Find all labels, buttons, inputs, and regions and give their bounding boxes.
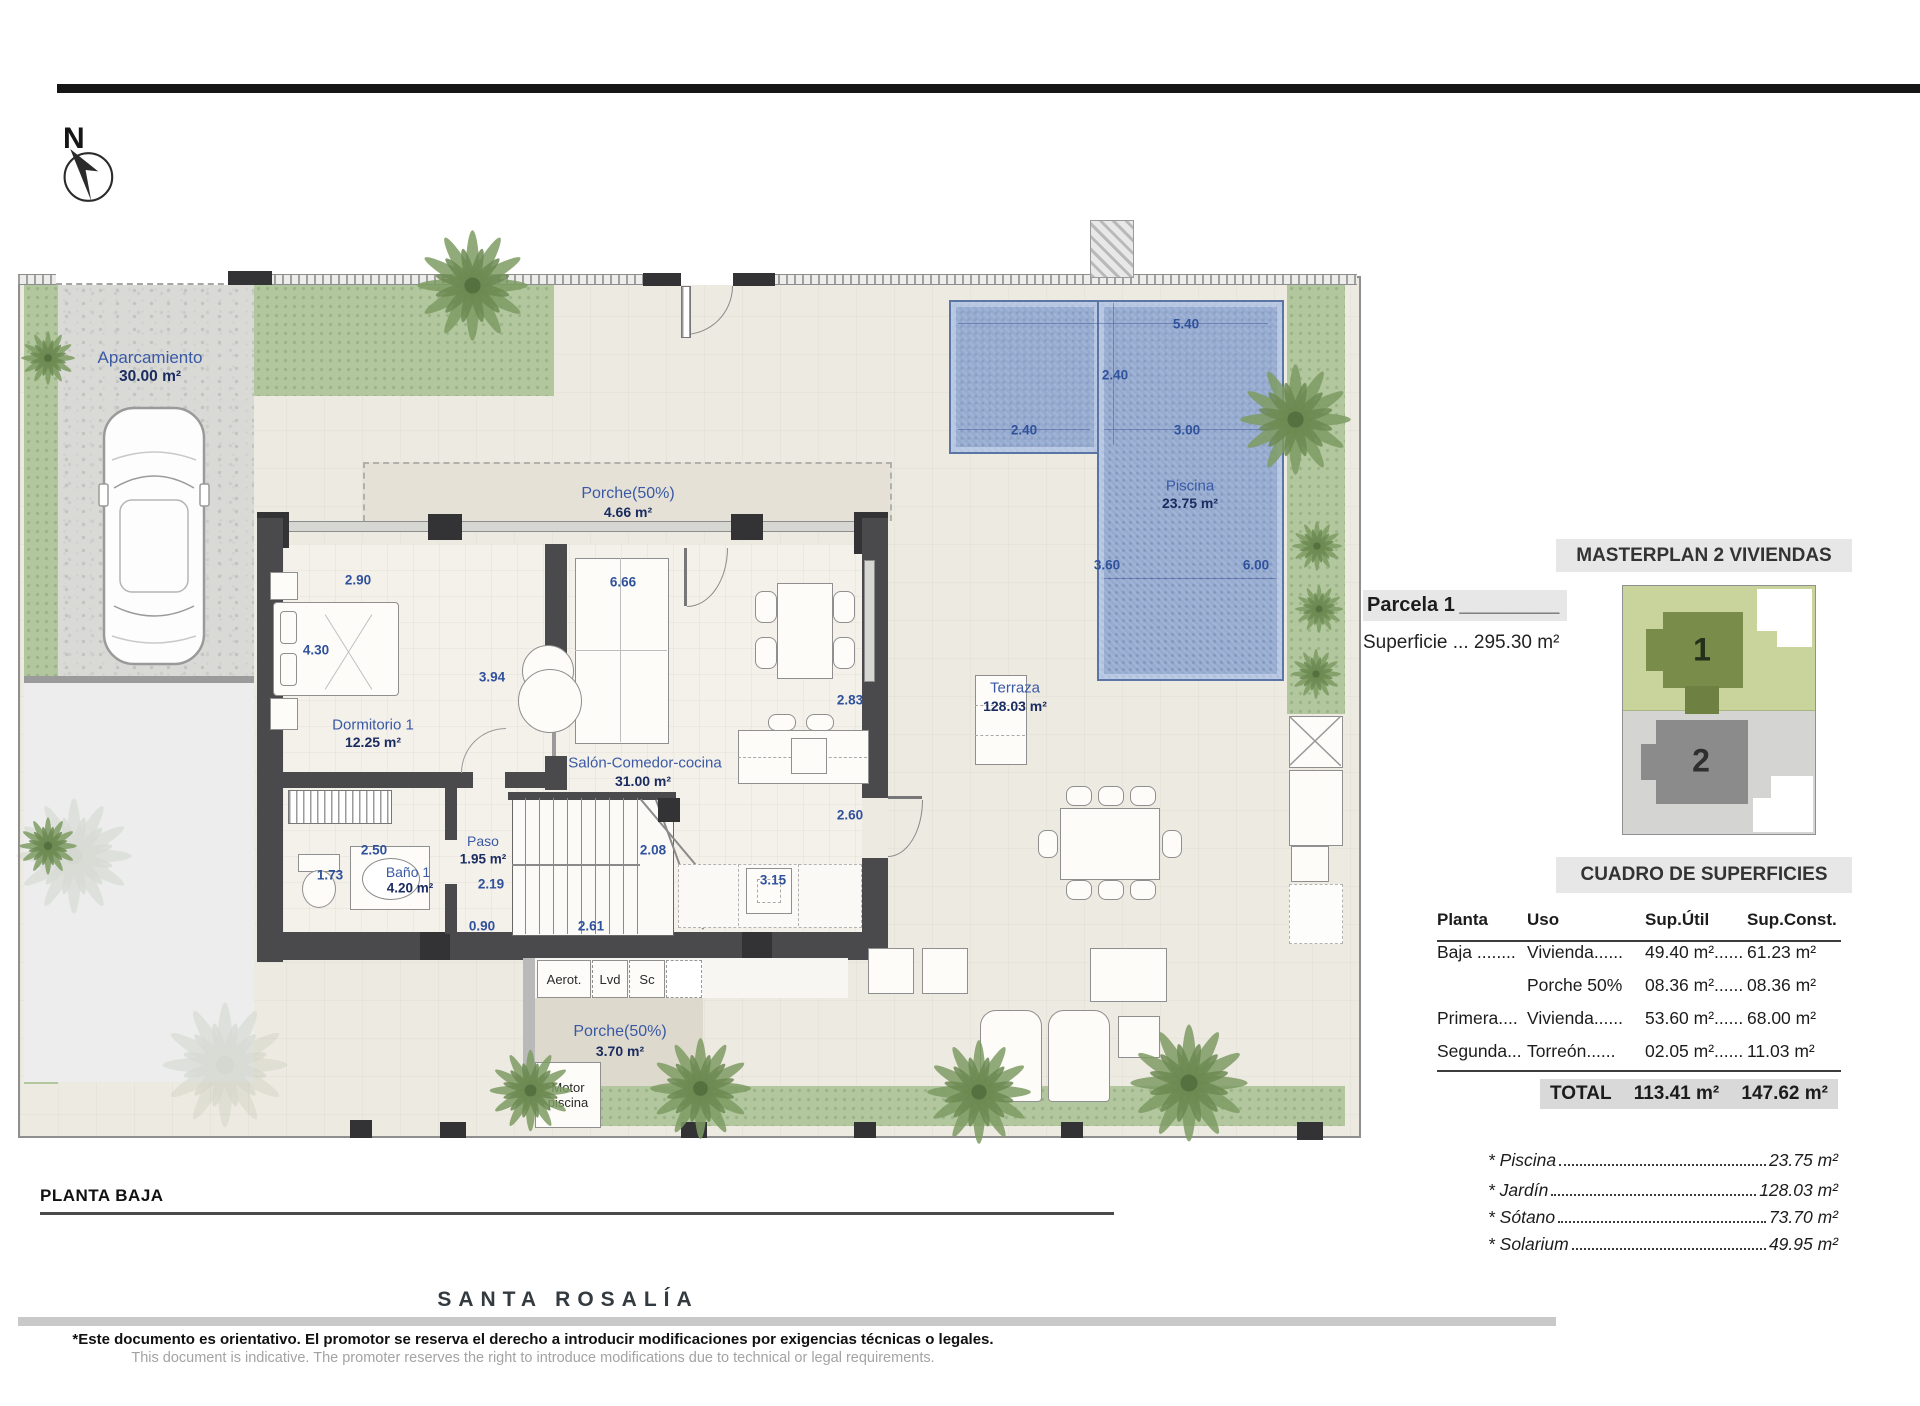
nightstand <box>270 572 298 600</box>
extra-value: 23.75 m² <box>1769 1150 1838 1171</box>
chair <box>755 637 777 669</box>
palm-tree-icon <box>160 1000 290 1130</box>
footer-rule <box>18 1317 1556 1326</box>
stair-rail <box>512 864 640 866</box>
fence-post <box>854 1122 876 1138</box>
dim-label: 2.90 <box>345 573 371 588</box>
room-label-aparcamiento: Aparcamiento <box>98 348 203 368</box>
extra-value: 128.03 m² <box>1759 1180 1838 1201</box>
house-1-shape <box>1685 686 1719 714</box>
coffee-table <box>518 669 582 733</box>
outdoor-chair <box>1038 830 1058 858</box>
neighbor-entry-steps <box>1090 220 1134 278</box>
aerotermia-box: Aerot. <box>537 960 591 998</box>
parcela-label: Parcela 1 <box>1367 594 1455 616</box>
cell-uso: Vivienda...... <box>1527 942 1645 963</box>
masterplan-title: MASTERPLAN 2 VIVIENDAS <box>1576 545 1831 566</box>
stool <box>768 714 796 731</box>
outdoor-chair <box>1162 830 1182 858</box>
entry-door-leaf <box>684 548 687 606</box>
parcela-bar: Parcela 1 _________ <box>1363 590 1567 621</box>
total-label: TOTAL <box>1550 1083 1612 1105</box>
nightstand <box>270 698 298 730</box>
stair-treads <box>512 798 640 934</box>
cuadro-title: CUADRO DE SUPERFICIES <box>1580 864 1827 885</box>
fence-post <box>1061 1122 1083 1138</box>
counter-line <box>975 735 1025 736</box>
dim-label: 2.40 <box>1102 368 1128 383</box>
disclaimer-en: This document is indicative. The promote… <box>18 1350 1048 1366</box>
facade-pillar <box>731 514 763 540</box>
cooktop <box>791 738 827 774</box>
extra-value: 73.70 m² <box>1769 1207 1838 1228</box>
utility-dashed-box <box>1289 884 1343 944</box>
partition-dorm-bath <box>505 772 545 788</box>
disclaimer-block: *Este documento es orientativo. El promo… <box>18 1331 1048 1366</box>
room-area-porche-bottom: 3.70 m² <box>596 1043 644 1059</box>
room-area-aparcamiento: 30.00 m² <box>119 368 181 386</box>
dim-label: 1.73 <box>317 868 343 883</box>
dim-label: 2.60 <box>837 808 863 823</box>
outdoor-chair <box>1130 880 1156 900</box>
partition-bath-paso <box>445 788 457 840</box>
dim-label: 2.83 <box>837 693 863 708</box>
palm-tree-icon <box>925 1038 1033 1146</box>
stool <box>806 714 834 731</box>
extra-label: * Solarium <box>1488 1234 1569 1255</box>
fence-post <box>733 273 775 286</box>
cabinet-divider <box>738 864 739 926</box>
partition-dorm-bath <box>283 772 473 788</box>
extra-label: * Piscina <box>1488 1150 1556 1171</box>
plan-title: PLANTA BAJA <box>40 1186 164 1206</box>
extra-row-solarium: * Solarium49.95 m² <box>1488 1234 1838 1255</box>
dim-label: 6.66 <box>610 575 636 590</box>
house-1-shape <box>1646 629 1666 671</box>
dotted-leader <box>1559 1164 1766 1166</box>
utility-meter <box>1291 846 1329 882</box>
room-label-salon: Salón-Comedor-cocina <box>568 755 721 772</box>
stair-pillar <box>658 798 680 822</box>
total-bar: TOTAL 113.41 m² 147.62 m² <box>1540 1079 1838 1109</box>
dim-label: 3.60 <box>1094 558 1120 573</box>
dim-label: 2.40 <box>1011 423 1037 438</box>
pillow <box>280 653 297 686</box>
ac-unit-x <box>1289 716 1341 766</box>
masterplan-title-bar: MASTERPLAN 2 VIVIENDAS <box>1556 539 1852 572</box>
floor-plan-page: N <box>0 0 1920 1406</box>
cell-util: 49.40 m²...... <box>1645 942 1747 963</box>
col-header-planta: Planta <box>1437 910 1527 930</box>
map-notch <box>1777 631 1812 647</box>
col-header-uso: Uso <box>1527 910 1645 930</box>
lavadora-label: Lvd <box>600 972 621 987</box>
room-area-dormitorio1: 12.25 m² <box>345 734 401 750</box>
bush-icon <box>20 330 76 386</box>
table-rule <box>1437 1070 1841 1072</box>
bush-icon <box>1294 584 1344 634</box>
dim-label: 5.40 <box>1173 317 1199 332</box>
parcela-line: _________ <box>1459 594 1559 616</box>
extra-row-piscina: * Piscina23.75 m² <box>1488 1150 1838 1171</box>
dotted-leader <box>1558 1221 1766 1223</box>
wall-bottom <box>257 932 888 960</box>
total-const: 147.62 m² <box>1741 1083 1828 1105</box>
cuadro-title-bar: CUADRO DE SUPERFICIES <box>1556 857 1852 893</box>
garden-wall <box>24 676 254 683</box>
map-notch <box>1753 798 1773 832</box>
room-area-paso: 1.95 m² <box>460 852 507 867</box>
sun-lounger <box>1048 1010 1110 1102</box>
dim-label: 3.15 <box>760 873 786 888</box>
cell-uso: Vivienda...... <box>1527 1008 1645 1029</box>
map-notch <box>1771 776 1813 832</box>
dim-label: 2.50 <box>361 843 387 858</box>
fence-post <box>350 1120 372 1138</box>
pillow <box>280 611 297 644</box>
terrace-door-gap <box>862 798 888 858</box>
chair <box>755 591 777 623</box>
gate-leaf <box>681 286 691 338</box>
room-area-salon: 31.00 m² <box>615 773 671 789</box>
window-right <box>864 560 875 682</box>
bush-icon <box>1290 648 1342 700</box>
fence-post <box>643 273 681 286</box>
cabinet-divider <box>798 864 799 926</box>
room-area-piscina: 23.75 m² <box>1162 495 1218 511</box>
cell-util: 02.05 m²...... <box>1645 1041 1747 1062</box>
palm-tree-icon <box>648 1036 753 1141</box>
top-rule <box>57 84 1920 93</box>
brand-name: SANTA ROSALÍA <box>437 1288 698 1311</box>
north-arrow-icon <box>52 128 122 212</box>
house-2-label: 2 <box>1692 743 1710 780</box>
cell-const: 08.36 m² <box>1747 975 1841 996</box>
car-top-view <box>98 400 210 672</box>
col-header-const: Sup.Const. <box>1747 910 1841 930</box>
outdoor-seat <box>868 948 914 994</box>
dim-label: 2.19 <box>478 877 504 892</box>
sofa-line <box>575 650 667 651</box>
total-util: 113.41 m² <box>1634 1083 1720 1105</box>
fence-post <box>1297 1122 1323 1140</box>
driveway-gate <box>56 274 234 285</box>
palm-tree-icon <box>1128 1022 1250 1144</box>
dotted-leader <box>1551 1194 1756 1196</box>
pedestrian-gate-gap <box>681 272 733 285</box>
extra-row-jardin: * Jardín128.03 m² <box>1488 1180 1838 1201</box>
partition-bath-paso <box>445 884 457 934</box>
room-label-paso: Paso <box>467 833 499 849</box>
cell-const: 61.23 m² <box>1747 942 1841 963</box>
room-label-piscina: Piscina <box>1166 478 1214 495</box>
room-label-dormitorio1: Dormitorio 1 <box>332 717 414 734</box>
outdoor-chair <box>1098 880 1124 900</box>
secadora-label: Sc <box>639 972 654 987</box>
room-area-porche-top: 4.66 m² <box>604 504 652 520</box>
outdoor-chair <box>1066 880 1092 900</box>
room-label-porche-bottom: Porche(50%) <box>573 1023 666 1041</box>
plan-title-rule <box>40 1212 1114 1215</box>
cell-util: 08.36 m²...... <box>1645 975 1747 996</box>
bush-icon <box>1291 520 1343 572</box>
fence-post <box>228 271 272 285</box>
wardrobe <box>288 790 392 824</box>
room-label-terraza: Terraza <box>990 680 1040 697</box>
room-area-terraza: 128.03 m² <box>983 698 1047 714</box>
cell-planta: Primera.... <box>1437 1008 1527 1029</box>
dotted-leader <box>1572 1248 1766 1250</box>
outdoor-seat <box>922 948 968 994</box>
extra-value: 49.95 m² <box>1769 1234 1838 1255</box>
dim-label: 2.08 <box>640 843 666 858</box>
chair <box>833 591 855 623</box>
room-area-bano1: 4.20 m² <box>387 881 434 896</box>
outdoor-dining-table <box>1060 808 1160 880</box>
cell-planta: Baja ........ <box>1437 942 1527 963</box>
lavadora-box: Lvd <box>592 960 628 998</box>
cell-const: 11.03 m² <box>1747 1041 1841 1062</box>
extra-label: * Jardín <box>1488 1180 1548 1201</box>
utility-cabinet <box>1289 770 1343 846</box>
palm-tree-icon <box>1238 362 1353 477</box>
table-rule <box>1437 940 1841 942</box>
cell-util: 53.60 m²...... <box>1645 1008 1747 1029</box>
cell-const: 68.00 m² <box>1747 1008 1841 1029</box>
room-label-bano1: Baño 1 <box>386 864 430 880</box>
superficie-label: Superficie ... 295.30 m² <box>1363 632 1559 653</box>
aerotermia-label: Aerot. <box>547 972 582 987</box>
palm-tree-icon <box>488 1048 573 1133</box>
disclaimer-es: *Este documento es orientativo. El promo… <box>18 1331 1048 1348</box>
secadora-box: Sc <box>629 960 665 998</box>
dim-line <box>1104 578 1276 579</box>
house-2-shape <box>1641 744 1659 780</box>
bush-icon <box>18 816 78 876</box>
room-label-porche-top: Porche(50%) <box>581 485 674 503</box>
cell-planta: Segunda... <box>1437 1041 1527 1062</box>
brand-wrap: SANTA ROSALÍA <box>18 1288 1118 1312</box>
dim-label: 2.61 <box>578 919 604 934</box>
dim-label: 0.90 <box>469 919 495 934</box>
wall-pillar <box>420 932 450 960</box>
dim-label: 3.94 <box>479 670 505 685</box>
chair <box>833 637 855 669</box>
cell-uso: Porche 50% <box>1527 975 1645 996</box>
dim-label: 3.00 <box>1174 423 1200 438</box>
superficie-label-wrap: Superficie ... 295.30 m² <box>1363 632 1559 654</box>
terrace-door-leaf <box>888 796 922 799</box>
dim-label: 4.30 <box>303 643 329 658</box>
partition-stub <box>545 756 567 790</box>
fence-post <box>440 1122 466 1138</box>
outdoor-chair <box>1066 786 1092 806</box>
facade-pillar <box>428 514 462 540</box>
low-table <box>1090 948 1167 1002</box>
dim-label: 6.00 <box>1243 558 1269 573</box>
masterplan-map: 1 2 <box>1622 585 1816 835</box>
extra-row-sotano: * Sótano73.70 m² <box>1488 1207 1838 1228</box>
col-header-util: Sup.Útil <box>1645 910 1747 930</box>
utility-box-empty <box>666 960 702 998</box>
wall-pillar <box>742 932 772 960</box>
extra-label: * Sótano <box>1488 1207 1555 1228</box>
outdoor-chair <box>1130 786 1156 806</box>
surfaces-table: Planta Uso Sup.Útil Sup.Const. Baja ....… <box>1437 910 1841 1062</box>
dining-table <box>777 583 833 679</box>
facade-glazing <box>257 521 888 532</box>
outdoor-chair <box>1098 786 1124 806</box>
palm-tree-icon <box>415 228 530 343</box>
map-notch <box>1757 589 1812 631</box>
cell-planta <box>1437 975 1527 996</box>
house-1-label: 1 <box>1693 632 1711 669</box>
cell-uso: Torreón...... <box>1527 1041 1645 1062</box>
